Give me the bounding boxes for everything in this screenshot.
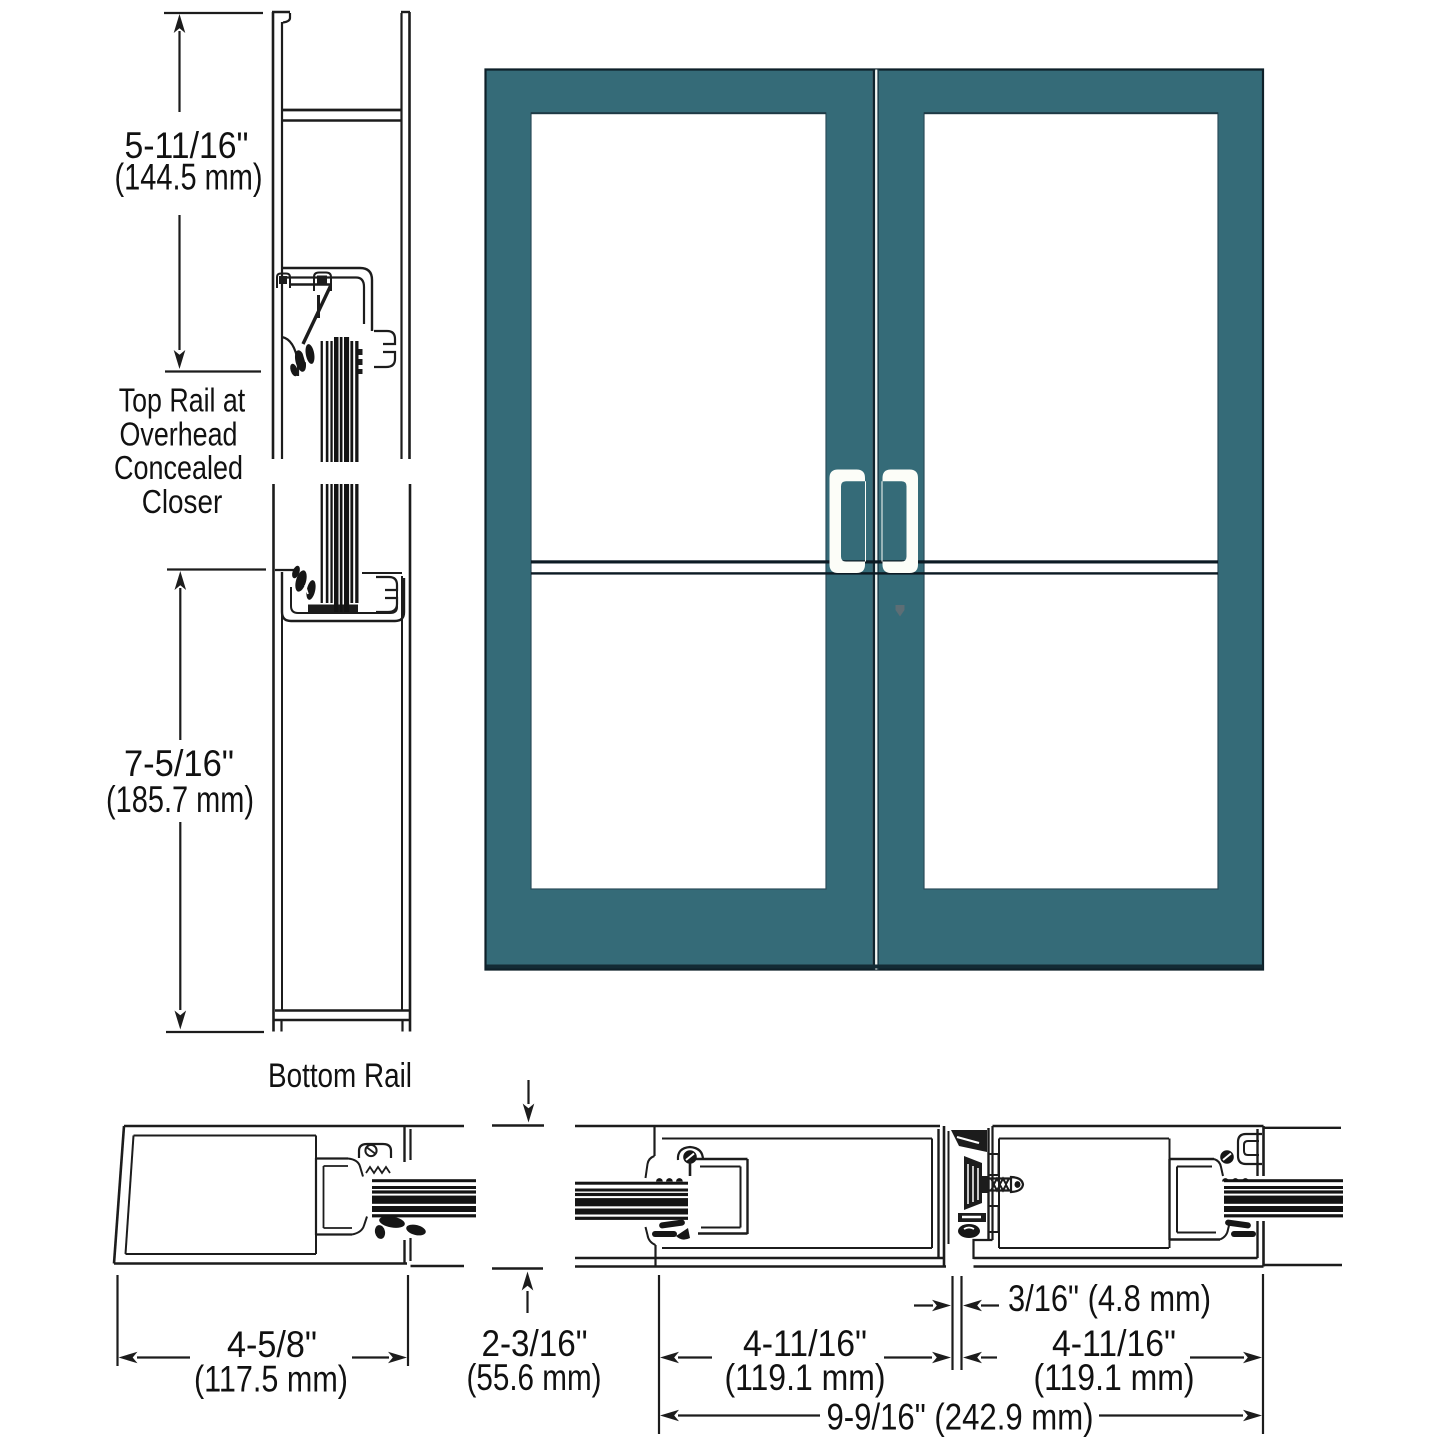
svg-text:Bottom Rail: Bottom Rail	[268, 1057, 412, 1095]
svg-text:(185.7 mm): (185.7 mm)	[106, 779, 254, 820]
svg-text:(119.1 mm): (119.1 mm)	[725, 1357, 886, 1398]
svg-text:Concealed: Concealed	[114, 449, 243, 486]
svg-text:(144.5 mm): (144.5 mm)	[115, 157, 263, 198]
svg-text:9-9/16" (242.9 mm): 9-9/16" (242.9 mm)	[827, 1397, 1094, 1438]
svg-text:(55.6 mm): (55.6 mm)	[467, 1357, 602, 1398]
svg-text:Closer: Closer	[142, 483, 223, 520]
svg-text:(119.1 mm): (119.1 mm)	[1034, 1357, 1195, 1398]
svg-text:Overhead: Overhead	[120, 416, 238, 453]
svg-text:Top Rail at: Top Rail at	[119, 382, 246, 419]
svg-text:3/16" (4.8 mm): 3/16" (4.8 mm)	[1008, 1278, 1211, 1319]
svg-text:(117.5 mm): (117.5 mm)	[194, 1359, 348, 1400]
svg-text:7-5/16": 7-5/16"	[124, 743, 234, 784]
